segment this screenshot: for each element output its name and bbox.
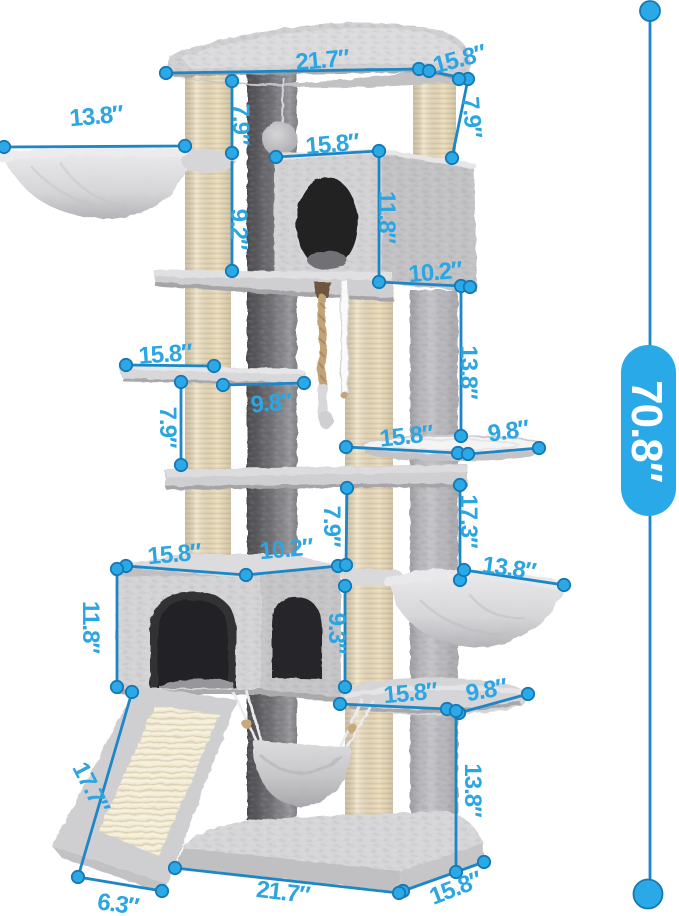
svg-text:13.8″: 13.8″ [68, 101, 125, 133]
svg-text:70.8″: 70.8″ [622, 380, 671, 483]
svg-text:13.8″: 13.8″ [455, 345, 482, 400]
svg-text:15.8″: 15.8″ [146, 539, 203, 571]
svg-text:7.9″: 7.9″ [154, 407, 181, 449]
svg-text:21.7″: 21.7″ [294, 45, 351, 77]
svg-text:15.8″: 15.8″ [138, 339, 194, 370]
svg-text:17.3″: 17.3″ [455, 494, 482, 549]
svg-text:6.3″: 6.3″ [96, 888, 142, 916]
svg-text:15.8″: 15.8″ [382, 678, 439, 710]
svg-text:7.9″: 7.9″ [227, 104, 254, 146]
svg-text:7.9″: 7.9″ [456, 96, 487, 141]
svg-text:11.8″: 11.8″ [77, 601, 104, 654]
svg-text:9.2″: 9.2″ [225, 209, 252, 251]
svg-text:9.3″: 9.3″ [323, 613, 350, 655]
svg-text:10.2″: 10.2″ [258, 534, 315, 566]
svg-text:11.8″: 11.8″ [373, 191, 400, 244]
svg-text:10.2″: 10.2″ [407, 257, 464, 289]
svg-text:15.8″: 15.8″ [304, 129, 361, 161]
svg-text:13.8″: 13.8″ [459, 763, 486, 818]
svg-text:7.9″: 7.9″ [318, 506, 345, 548]
svg-text:9.8″: 9.8″ [250, 388, 295, 419]
svg-text:15.8″: 15.8″ [378, 420, 435, 453]
